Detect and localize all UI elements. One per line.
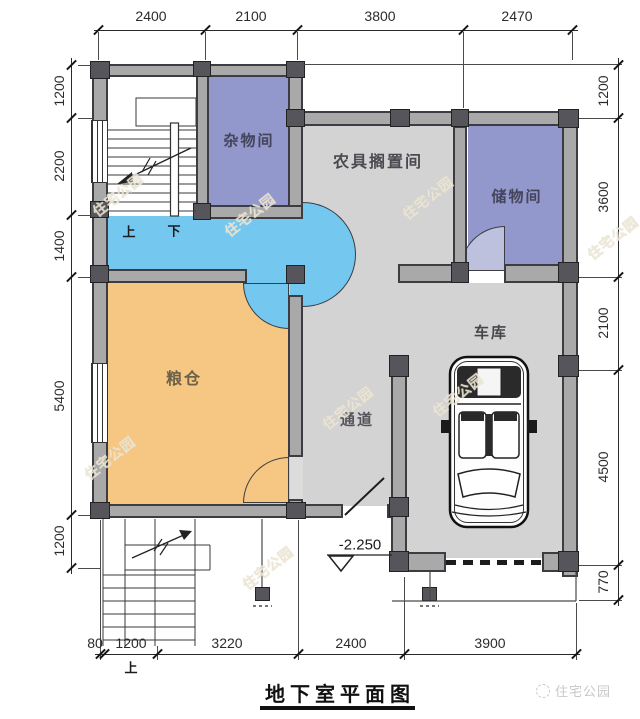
dim-label: 2400 <box>135 8 166 24</box>
wall-segment <box>398 264 456 283</box>
extension-line <box>78 65 92 66</box>
column <box>90 502 110 519</box>
column <box>451 262 469 283</box>
column <box>193 203 211 220</box>
wall-segment <box>562 111 578 577</box>
dimension-line-top <box>94 30 578 31</box>
exterior-stair <box>103 519 210 646</box>
dim-label: 3220 <box>211 635 242 651</box>
farm-tool-room-label: 农具搁置间 <box>333 148 423 172</box>
elevation-label: -2.250 <box>339 537 382 554</box>
column <box>286 265 305 284</box>
porch-column <box>255 587 270 601</box>
garage-door-dashed-line <box>446 560 544 565</box>
extension-line <box>572 32 573 60</box>
extension-line <box>205 32 206 60</box>
dimension-line-bottom <box>95 654 580 655</box>
brand-logo: 住宅公园 <box>536 681 640 700</box>
dim-label: 1200 <box>51 75 67 106</box>
window <box>91 120 108 183</box>
wall-segment <box>391 357 407 572</box>
hall-door-opening <box>290 216 303 296</box>
wall-segment <box>196 70 209 219</box>
column <box>90 61 110 79</box>
column <box>558 109 579 128</box>
extension-line <box>78 118 92 119</box>
dim-label: 5400 <box>51 380 67 411</box>
watermark: 住宅公园 <box>583 212 640 265</box>
dimension-line-left <box>71 58 72 574</box>
dim-label: 80 <box>87 635 103 651</box>
column <box>286 502 306 519</box>
drawing-title: 地下室平面图 <box>240 678 440 707</box>
extension-line <box>298 520 299 660</box>
wall-segment <box>288 111 579 126</box>
extension-line <box>303 64 622 65</box>
elevation-triangle-icon <box>329 556 353 571</box>
stair-up-label: 上 <box>122 222 135 241</box>
basement-floor-plan: 2400 2100 3800 2470 1200 2200 1400 5400 … <box>0 0 640 719</box>
wall-segment <box>288 64 303 218</box>
dim-label: 2100 <box>235 8 266 24</box>
dim-label: 1200 <box>595 75 611 106</box>
column <box>558 262 579 283</box>
dim-label: 1200 <box>51 525 67 556</box>
dim-label: 1400 <box>51 230 67 261</box>
dim-label: 4500 <box>595 451 611 482</box>
column <box>390 109 410 127</box>
dim-label: 1200 <box>115 635 146 651</box>
extension-line <box>404 577 405 660</box>
brand-logo-text: 住宅公园 <box>555 681 611 700</box>
column <box>389 497 409 517</box>
column <box>90 265 109 283</box>
extension-line <box>297 32 298 60</box>
dim-label: 2470 <box>501 8 532 24</box>
dim-label: 2100 <box>595 307 611 338</box>
extension-line <box>78 215 92 216</box>
grain-store-label: 粮仓 <box>166 365 202 389</box>
column <box>286 109 305 127</box>
wall-segment <box>453 126 467 271</box>
dim-label: 2400 <box>335 635 366 651</box>
window <box>91 363 108 443</box>
column <box>558 355 579 377</box>
stair-down-label: 下 <box>167 221 180 240</box>
garage-label: 车库 <box>474 322 508 343</box>
porch-column <box>422 587 437 601</box>
dim-label: 3800 <box>364 8 395 24</box>
extension-line <box>78 277 92 278</box>
sun-logo-icon <box>536 684 550 698</box>
dim-label: 770 <box>595 570 611 593</box>
dim-label: 3900 <box>474 635 505 651</box>
column <box>558 551 579 572</box>
column <box>193 61 211 77</box>
dim-label: 2200 <box>51 150 67 181</box>
wall-segment <box>92 269 247 283</box>
grain-store-east-door-opening <box>290 457 303 505</box>
column <box>451 109 469 127</box>
extension-line <box>78 515 92 516</box>
forecourt-passage-floor <box>303 283 563 506</box>
title-underline <box>260 706 415 710</box>
outdoor-stair-up-label: 上 <box>124 658 137 677</box>
storage-room-label: 储物间 <box>491 186 542 207</box>
column <box>389 551 409 572</box>
wall-segment <box>288 295 303 457</box>
misc-room-label: 杂物间 <box>223 130 274 151</box>
extension-line <box>78 568 100 569</box>
extension-line <box>463 32 464 108</box>
dimension-line-right <box>618 58 619 606</box>
garage-floor <box>393 506 563 558</box>
dim-label: 3600 <box>595 181 611 212</box>
extension-line <box>98 32 99 60</box>
column <box>389 355 409 377</box>
